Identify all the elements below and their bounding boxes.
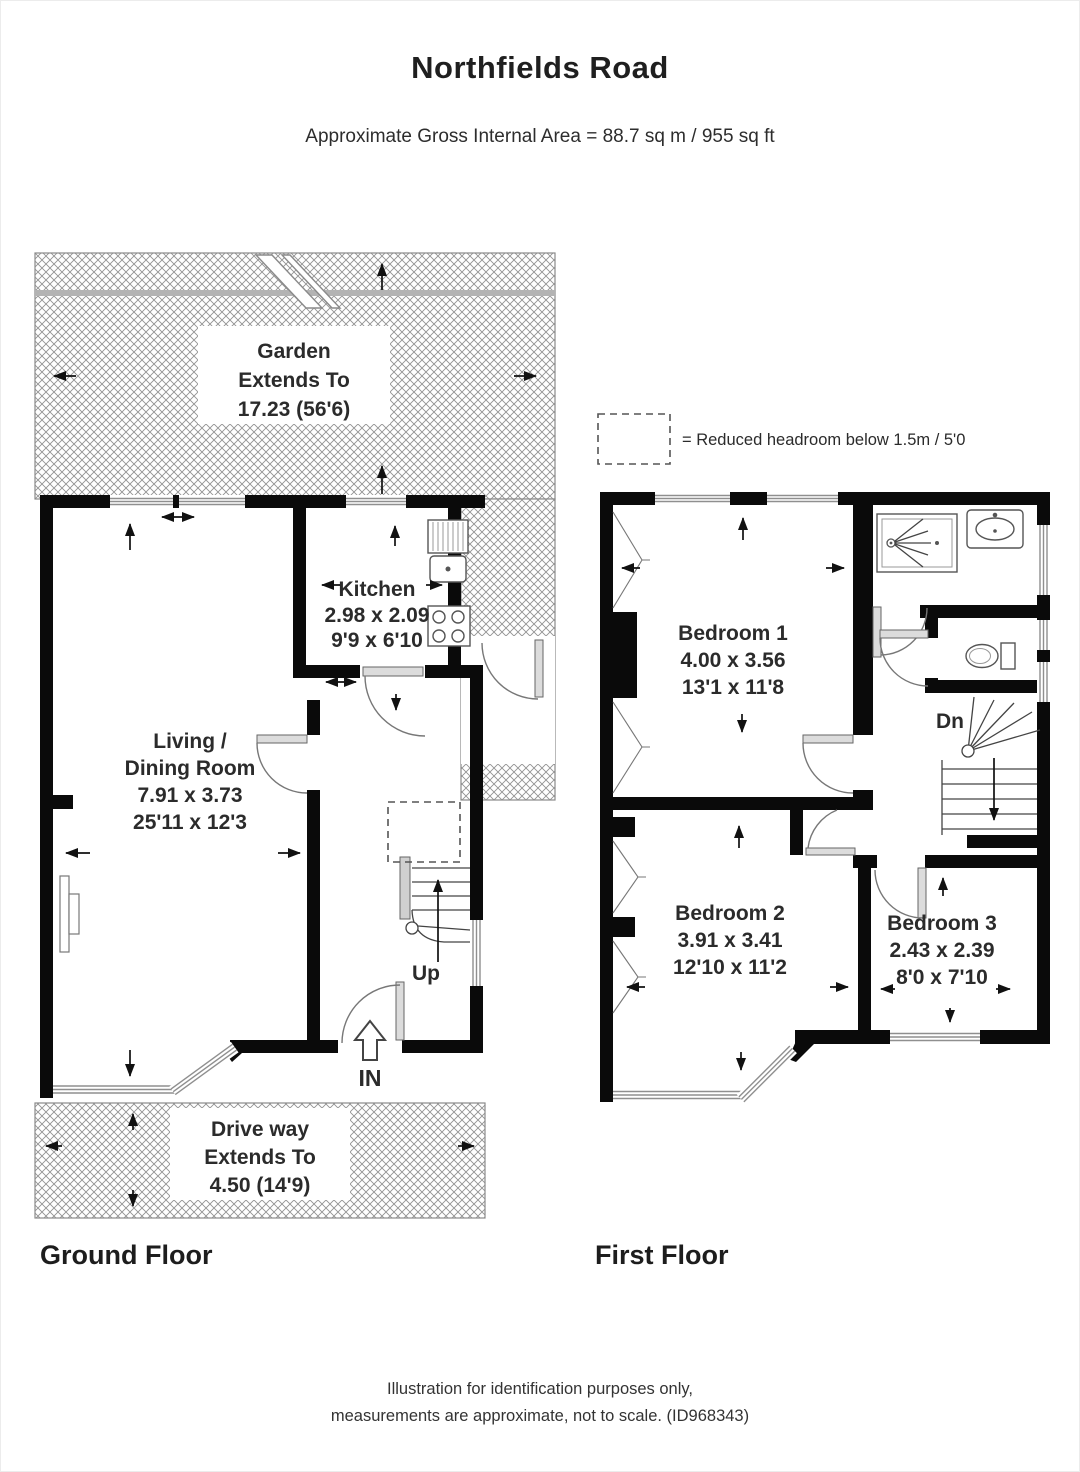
ground-floor-windows bbox=[53, 495, 483, 1097]
toilet-icon bbox=[966, 643, 1015, 669]
bedroom2-door bbox=[806, 810, 855, 855]
stairs-up-label: Up bbox=[412, 962, 440, 985]
wc-window bbox=[1037, 620, 1050, 650]
wc-door bbox=[880, 630, 928, 686]
ground-floor-section-label: Ground Floor bbox=[40, 1240, 212, 1271]
kitchen-metric: 2.98 x 2.09 bbox=[324, 604, 429, 627]
bedroom1-door bbox=[803, 735, 853, 793]
bedroom2-label: Bedroom 2 bbox=[675, 902, 785, 925]
living-label-line2: Dining Room bbox=[125, 757, 256, 780]
entrance-in-arrow-icon bbox=[355, 1021, 385, 1060]
bedroom1-window-left bbox=[655, 492, 730, 505]
page-subtitle: Approximate Gross Internal Area = 88.7 s… bbox=[0, 126, 1080, 148]
hall-side-window bbox=[470, 920, 483, 986]
bedroom3-metric: 2.43 x 2.39 bbox=[889, 939, 994, 962]
bedroom2-bay-window bbox=[613, 1044, 797, 1104]
stairs-up: Up bbox=[388, 802, 470, 985]
driveway-label: Drive way bbox=[211, 1118, 309, 1141]
garden-dimension: 17.23 (56'6) bbox=[238, 398, 350, 421]
legend-swatch bbox=[598, 414, 670, 464]
kitchen-label: Kitchen bbox=[338, 578, 415, 601]
stairs-down-label: Dn bbox=[936, 710, 964, 733]
driveway-dimension: 4.50 (14'9) bbox=[210, 1174, 311, 1197]
garden-area: Garden Extends To 17.23 (56'6) bbox=[35, 253, 555, 499]
page-title: Northfields Road bbox=[0, 50, 1080, 86]
stairs-window bbox=[1037, 662, 1050, 702]
stairs-down: Dn bbox=[936, 697, 1040, 835]
shower-room-window bbox=[1037, 525, 1050, 595]
bedroom3-door bbox=[875, 868, 926, 918]
bedroom3-imperial: 8'0 x 7'10 bbox=[896, 966, 988, 989]
kitchen-door bbox=[363, 667, 425, 736]
disclaimer-line1: Illustration for identification purposes… bbox=[0, 1376, 1080, 1403]
bedroom1-label: Bedroom 1 bbox=[678, 622, 788, 645]
kitchen-imperial: 9'9 x 6'10 bbox=[331, 629, 423, 652]
shower-icon bbox=[877, 514, 957, 572]
wardrobe-alcove-doors bbox=[613, 512, 650, 1013]
stove-icon bbox=[428, 606, 470, 646]
bathroom-fixtures bbox=[877, 510, 1023, 669]
disclaimer-line2: measurements are approximate, not to sca… bbox=[0, 1403, 1080, 1430]
first-floor-walls bbox=[600, 492, 1050, 1102]
driveway-area: Drive way Extends To 4.50 (14'9) bbox=[35, 1103, 485, 1218]
legend-label: = Reduced headroom below 1.5m / 5'0 bbox=[682, 431, 965, 449]
fireplace-icon bbox=[60, 876, 79, 952]
floorplan-page: { "header": { "title": "Northfields Road… bbox=[0, 0, 1080, 1472]
reduced-headroom-zone bbox=[388, 802, 460, 862]
first-floor-section-label: First Floor bbox=[595, 1240, 729, 1271]
entrance-label: IN bbox=[359, 1065, 382, 1091]
ground-floor-walls bbox=[40, 495, 485, 1098]
bedroom3-window bbox=[890, 1030, 980, 1044]
garden-label: Garden bbox=[257, 340, 331, 363]
bedroom1-imperial: 13'1 x 11'8 bbox=[682, 676, 785, 699]
bedroom2-imperial: 12'10 x 11'2 bbox=[673, 956, 787, 979]
ground-floor-plan: Garden Extends To 17.23 (56'6) bbox=[30, 248, 560, 1223]
kitchen-window bbox=[346, 495, 406, 508]
entrance-door: IN bbox=[342, 982, 404, 1091]
bedroom3-label: Bedroom 3 bbox=[887, 912, 997, 935]
disclaimer: Illustration for identification purposes… bbox=[0, 1376, 1080, 1430]
living-front-window bbox=[110, 495, 245, 508]
living-room-door bbox=[257, 735, 307, 793]
bedroom1-window-right bbox=[767, 492, 838, 505]
driveway-extends-label: Extends To bbox=[204, 1146, 316, 1169]
legend: = Reduced headroom below 1.5m / 5'0 bbox=[598, 414, 965, 464]
bedroom1-metric: 4.00 x 3.56 bbox=[680, 649, 785, 672]
living-imperial: 25'11 x 12'3 bbox=[133, 811, 247, 834]
sink-icon bbox=[428, 520, 468, 582]
living-metric: 7.91 x 3.73 bbox=[137, 784, 242, 807]
bay-window bbox=[53, 1042, 238, 1097]
garden-extends-label: Extends To bbox=[238, 369, 350, 392]
bedroom2-metric: 3.91 x 3.41 bbox=[677, 929, 782, 952]
first-floor-plan: = Reduced headroom below 1.5m / 5'0 bbox=[590, 400, 1070, 1120]
ground-floor-room-labels: Kitchen 2.98 x 2.09 9'9 x 6'10 Living / … bbox=[125, 578, 430, 834]
living-label-line1: Living / bbox=[153, 730, 227, 753]
basin-icon bbox=[967, 510, 1023, 548]
